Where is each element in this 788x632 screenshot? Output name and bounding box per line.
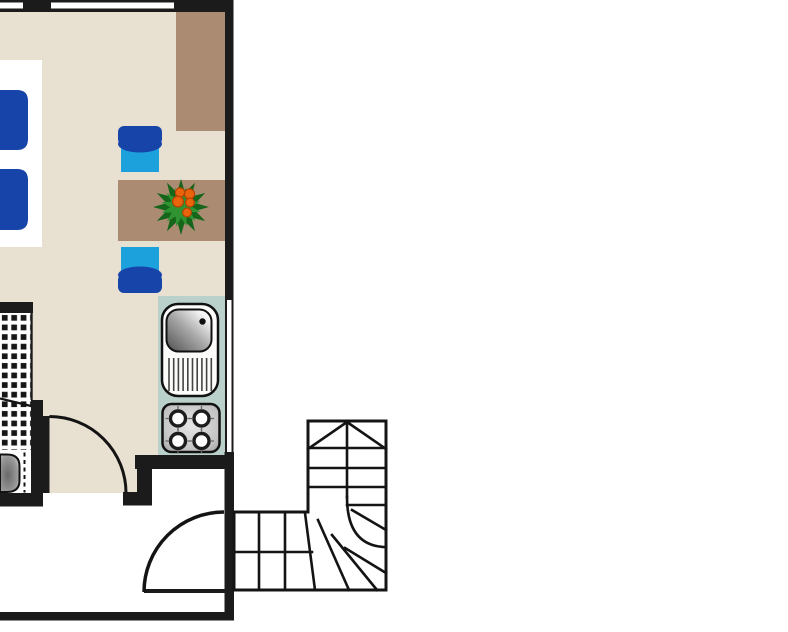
toilet xyxy=(0,455,20,493)
flower xyxy=(186,198,195,207)
chair-bottom xyxy=(118,247,162,293)
wardrobe xyxy=(176,12,225,131)
wall-door-jamb xyxy=(123,492,152,506)
window-right-outer-line xyxy=(232,300,234,452)
floor-hall-lower xyxy=(43,457,123,493)
flower xyxy=(185,189,195,199)
entrance-threshold xyxy=(144,589,225,593)
wall-hall-bottom xyxy=(0,493,43,507)
wall-bottom xyxy=(0,612,234,621)
tiled-floor xyxy=(0,313,31,450)
wall-below-kitchen xyxy=(135,455,234,469)
kitchenette xyxy=(158,296,225,455)
interior-door-leaf xyxy=(43,416,50,493)
chair-back-curve xyxy=(118,267,162,284)
floor-hall-upper xyxy=(43,400,158,457)
flower xyxy=(173,196,184,207)
window-top-left xyxy=(0,3,23,9)
wall-bathroom-side-thin xyxy=(31,313,33,400)
sink-basin xyxy=(167,310,212,352)
sink-drain xyxy=(199,318,205,324)
window-right-inner-line xyxy=(225,300,227,452)
bed xyxy=(0,60,42,247)
chair-back-curve xyxy=(118,136,162,153)
flower xyxy=(183,208,192,217)
floor-plan-canvas xyxy=(0,0,788,632)
chair-top xyxy=(118,126,162,172)
window-top-center xyxy=(51,3,174,9)
wall-bathroom-side xyxy=(31,400,43,507)
duvet-top xyxy=(0,90,28,150)
wall-right-upper xyxy=(225,0,234,300)
wall-bathroom-top xyxy=(0,302,33,313)
floor-plan-drawing xyxy=(0,0,788,632)
duvet-bottom xyxy=(0,169,28,230)
